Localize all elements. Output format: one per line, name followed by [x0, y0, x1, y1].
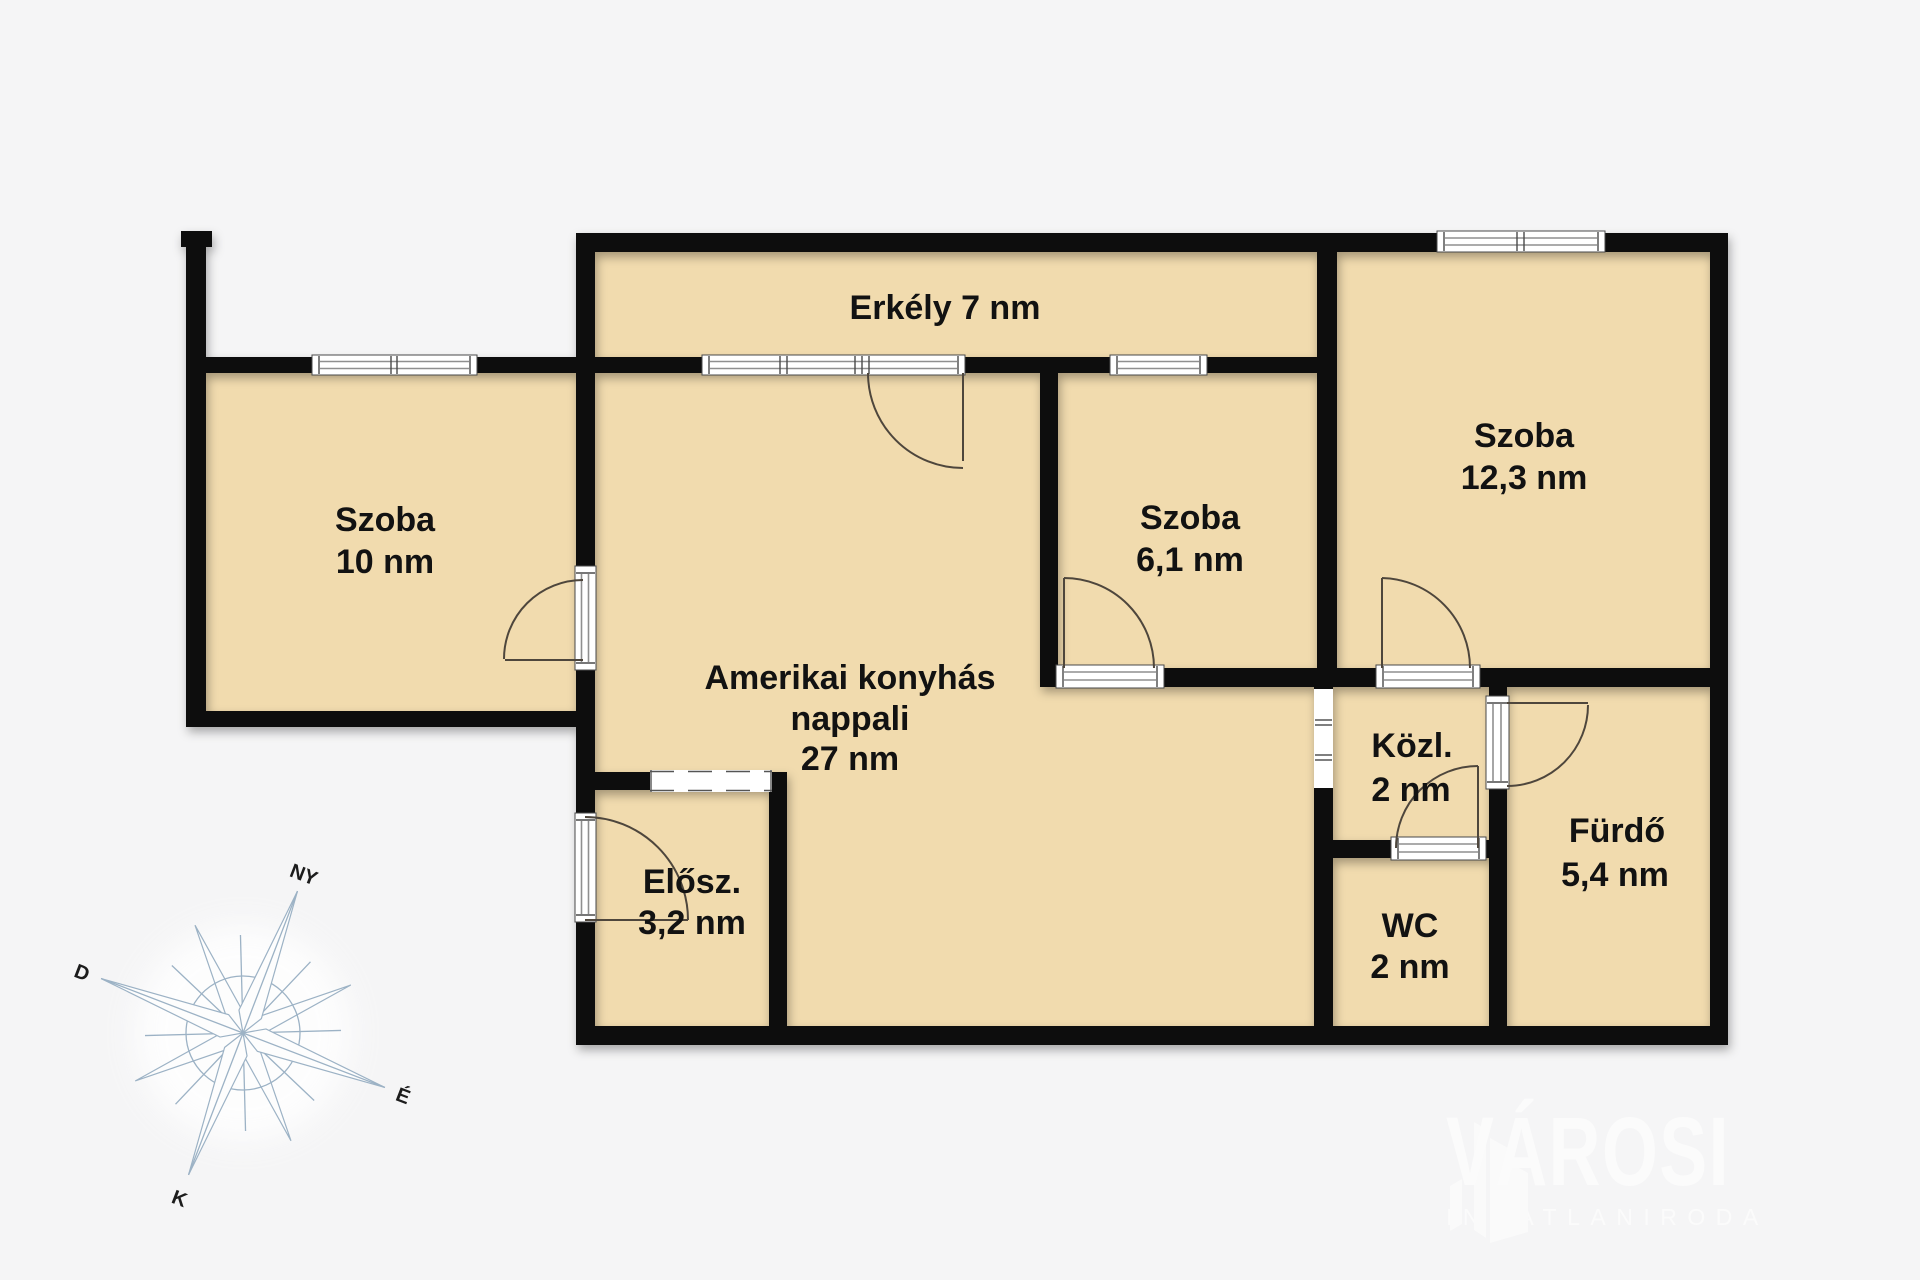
door-opening-szoba123 — [1376, 665, 1480, 688]
label-wc-name: WC — [1382, 907, 1439, 945]
compass-label-e: É — [393, 1083, 414, 1109]
door-opening-wc — [1391, 837, 1486, 860]
wall-elosz-right — [769, 772, 787, 1027]
door-opening-szoba61 — [1056, 665, 1164, 688]
logo-brand: VÁROSI — [1446, 1112, 1730, 1192]
window-balcony-band — [702, 355, 965, 375]
wall-outer-bottom — [576, 1026, 1728, 1045]
wall-szoba61-szoba123 — [1317, 252, 1337, 687]
label-nappali-line2: nappali — [790, 700, 909, 738]
compass-label-d: D — [71, 960, 92, 986]
label-wc-area: 2 nm — [1370, 948, 1449, 986]
floorplan-page: Erkély 7 nm Szoba 10 nm Amerikai konyhás… — [0, 0, 1920, 1280]
label-nappali-line1: Amerikai konyhás — [704, 659, 995, 697]
compass-icon: NY É K D — [8, 801, 474, 1274]
floorplan-drawing: Erkély 7 nm Szoba 10 nm Amerikai konyhás… — [0, 0, 1920, 1280]
window-szoba10 — [312, 355, 477, 375]
door-opening-szoba10 — [575, 566, 596, 670]
label-szoba123-area: 12,3 nm — [1461, 459, 1588, 497]
compass-main-points — [47, 837, 440, 1230]
label-kozl-name: Közl. — [1371, 727, 1452, 765]
label-elosz-name: Elősz. — [643, 863, 741, 901]
label-szoba123-name: Szoba — [1474, 417, 1575, 455]
closet-elosz — [650, 770, 772, 792]
label-nappali-line3: 27 nm — [801, 740, 899, 778]
door-opening-furdo — [1486, 696, 1509, 789]
label-furdo-name: Fürdő — [1569, 812, 1665, 850]
door-opening-entrance — [575, 813, 596, 922]
label-furdo-area: 5,4 nm — [1561, 856, 1669, 894]
agency-logo: VÁROSI INGATLANIRODA — [1446, 1112, 1830, 1231]
window-szoba61 — [1110, 355, 1207, 375]
label-szoba10-area: 10 nm — [336, 543, 434, 581]
compass-label-k: K — [169, 1186, 191, 1212]
label-kozl-area: 2 nm — [1371, 771, 1450, 809]
label-szoba61-name: Szoba — [1140, 499, 1241, 537]
label-szoba10-name: Szoba — [335, 501, 436, 539]
open-passage-kozl — [1314, 689, 1333, 788]
label-erkely: Erkély 7 nm — [850, 289, 1041, 327]
wall-szoba10-bottom — [186, 711, 595, 727]
wall-nappali-szoba61 — [1040, 357, 1058, 687]
compass-label-ny: NY — [287, 860, 321, 891]
window-szoba123 — [1437, 231, 1605, 252]
wall-szoba10-left — [186, 236, 206, 727]
label-szoba61-area: 6,1 nm — [1136, 541, 1244, 579]
label-elosz-area: 3,2 nm — [638, 904, 746, 942]
wall-outer-right — [1710, 233, 1728, 1045]
